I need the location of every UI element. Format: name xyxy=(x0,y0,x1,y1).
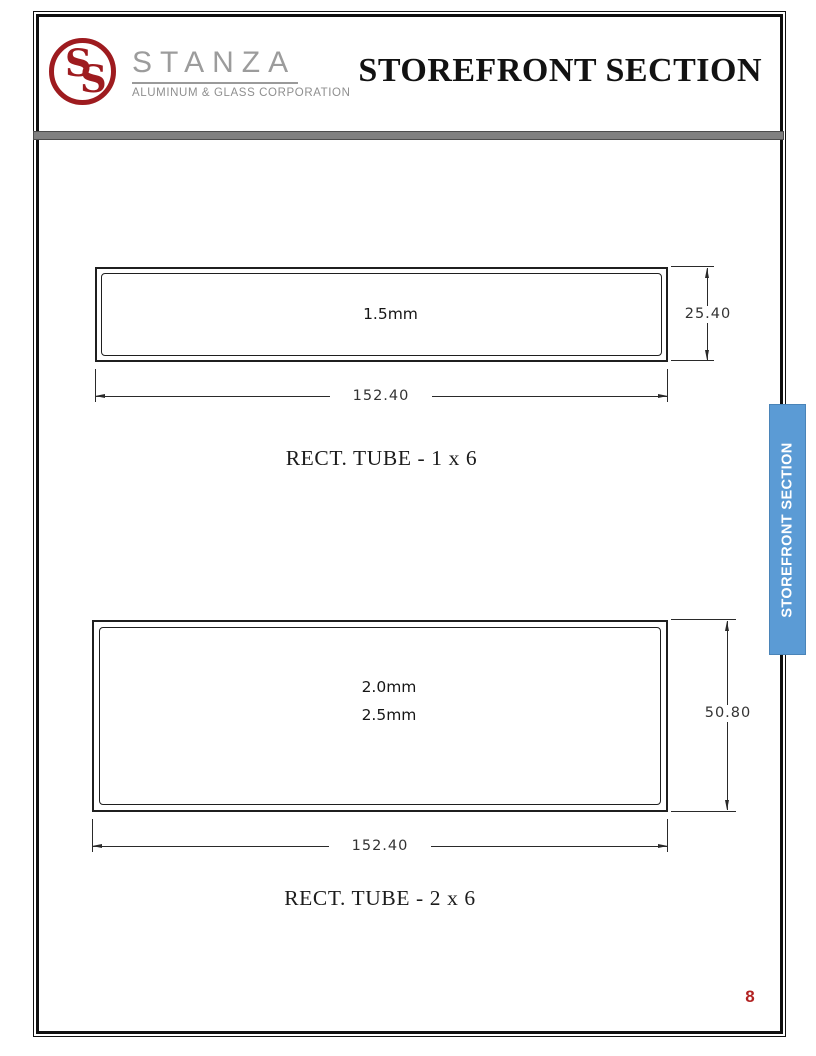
dimension-value: 50.80 xyxy=(697,705,759,722)
figure-caption: RECT. TUBE - 1 x 6 xyxy=(95,446,668,471)
brand-subtitle: ALUMINUM & GLASS CORPORATION xyxy=(132,87,351,99)
brand-name: STANZA xyxy=(132,46,298,84)
side-tab-label: STOREFRONT SECTION xyxy=(780,442,796,617)
side-tab-storefront-section: STOREFRONT SECTION xyxy=(769,404,806,655)
figure-caption: RECT. TUBE - 2 x 6 xyxy=(92,886,668,911)
extension-line xyxy=(671,360,714,361)
arrow-left-icon xyxy=(95,394,105,398)
page-border-outer xyxy=(33,11,786,1037)
arrow-down-icon xyxy=(705,350,709,360)
dimension-value: 152.40 xyxy=(329,838,431,855)
page-number: 8 xyxy=(733,987,767,1007)
dimension-value: 152.40 xyxy=(330,388,432,405)
arrow-down-icon xyxy=(725,800,729,810)
brand-block: STANZA ALUMINUM & GLASS CORPORATION xyxy=(132,46,351,99)
arrow-up-icon xyxy=(705,268,709,278)
extension-line xyxy=(671,619,736,620)
wall-thickness-label: 2.5mm xyxy=(103,706,675,724)
extension-line xyxy=(671,811,736,812)
extension-line xyxy=(671,266,714,267)
dimension-value: 25.40 xyxy=(677,306,739,323)
tube-outer-wall: 1.5mm xyxy=(95,267,668,362)
header-divider xyxy=(33,131,784,140)
arrow-left-icon xyxy=(92,844,102,848)
logo-monogram-letter: S xyxy=(80,61,107,98)
wall-thickness-label: 1.5mm xyxy=(106,305,675,323)
arrow-up-icon xyxy=(725,621,729,631)
page-border-inner xyxy=(36,14,783,1034)
page-title: STOREFRONT SECTION xyxy=(320,52,762,90)
arrow-right-icon xyxy=(658,394,668,398)
company-logo: S S xyxy=(49,38,116,105)
arrow-right-icon xyxy=(658,844,668,848)
tube-outer-wall: 2.0mm 2.5mm xyxy=(92,620,668,812)
wall-thickness-label: 2.0mm xyxy=(103,678,675,696)
